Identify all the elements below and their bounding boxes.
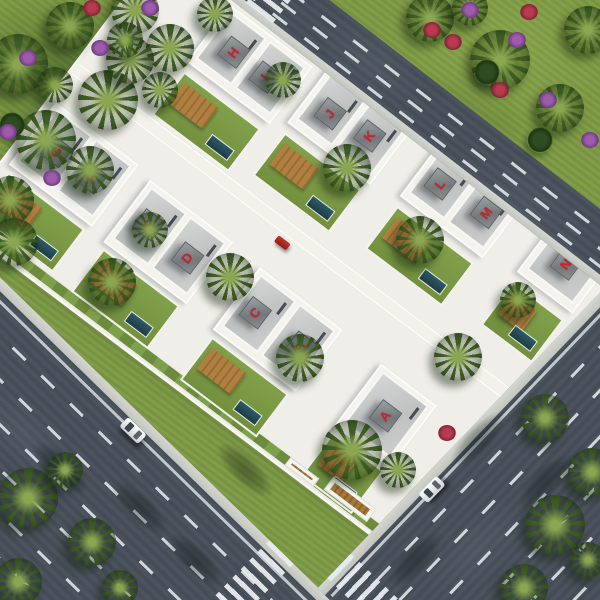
purple-flower-bush bbox=[141, 0, 159, 16]
purple-flower-bush bbox=[581, 132, 599, 148]
palm-tree bbox=[132, 212, 168, 248]
purple-flower-bush bbox=[19, 50, 37, 66]
unit-label-A: A bbox=[377, 407, 395, 424]
palm-tree bbox=[142, 72, 178, 108]
palm-tree bbox=[37, 67, 73, 103]
purple-flower-bush bbox=[91, 40, 109, 56]
unit-label-M: M bbox=[477, 203, 495, 221]
palm-tree bbox=[380, 452, 416, 488]
red-flower-bush bbox=[491, 82, 509, 98]
purple-flower-bush bbox=[508, 32, 526, 48]
palm-tree bbox=[570, 542, 600, 578]
unit-label-J: J bbox=[322, 106, 338, 121]
plunge-pool bbox=[124, 311, 154, 338]
purple-flower-bush bbox=[43, 170, 61, 186]
palm-tree bbox=[102, 570, 138, 600]
plunge-pool bbox=[205, 134, 235, 161]
purple-flower-bush bbox=[539, 92, 557, 108]
palm-tree bbox=[323, 144, 371, 192]
palm-tree bbox=[434, 333, 482, 381]
palm-tree bbox=[322, 420, 382, 480]
aerial-render-scene: A B C D E F G H I J K L M N bbox=[0, 0, 600, 600]
palm-tree bbox=[47, 452, 83, 488]
palm-tree bbox=[68, 518, 116, 566]
red-flower-bush bbox=[444, 34, 462, 50]
plunge-pool bbox=[233, 399, 263, 426]
purple-flower-bush bbox=[461, 2, 479, 18]
unit-label-K: K bbox=[361, 128, 379, 145]
conifer-tree bbox=[527, 127, 553, 153]
palm-tree bbox=[66, 146, 114, 194]
palm-tree bbox=[206, 253, 254, 301]
palm-tree bbox=[107, 22, 143, 58]
palm-tree bbox=[564, 6, 600, 54]
palm-tree bbox=[276, 334, 324, 382]
unit-label-H: H bbox=[225, 44, 243, 61]
palm-tree bbox=[500, 282, 536, 318]
palm-tree bbox=[521, 394, 569, 442]
plunge-pool bbox=[305, 195, 335, 222]
palm-tree bbox=[536, 84, 584, 132]
red-flower-bush bbox=[438, 425, 456, 441]
plunge-pool bbox=[418, 268, 448, 295]
unit-label-L: L bbox=[432, 176, 449, 192]
palm-tree bbox=[88, 258, 136, 306]
palm-tree bbox=[265, 62, 301, 98]
unit-label-C: C bbox=[247, 304, 265, 321]
palm-tree bbox=[396, 216, 444, 264]
unit-label-D: D bbox=[179, 250, 197, 267]
conifer-tree bbox=[474, 59, 500, 85]
red-flower-bush bbox=[423, 22, 441, 38]
red-flower-bush bbox=[83, 0, 101, 16]
red-flower-bush bbox=[520, 4, 538, 20]
